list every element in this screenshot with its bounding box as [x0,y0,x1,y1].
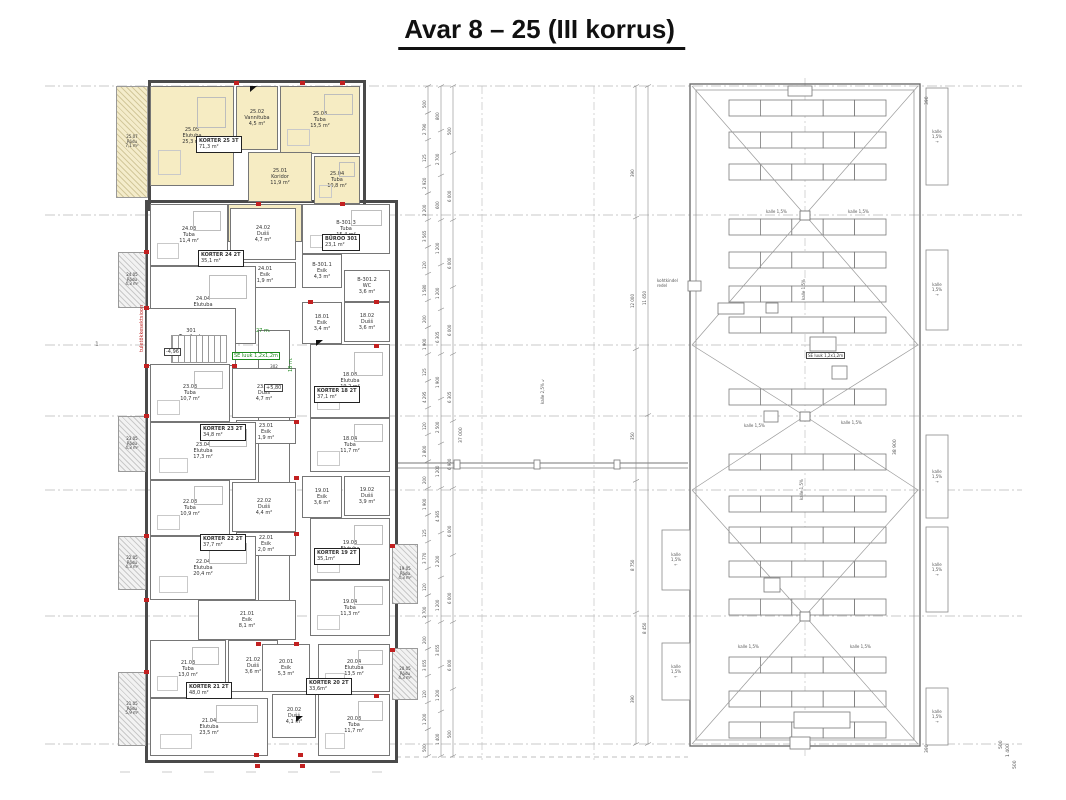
room-label: 21.01Esik8,1 m² [239,611,255,629]
furniture-icon [209,275,246,300]
room-area: 3,6 m² [314,500,330,506]
room: B-301.1Esik4,3 m² [302,254,342,288]
roof-panel [792,527,823,543]
roof-panel [729,496,760,512]
red-door-tag [144,364,149,368]
dimension-number: 1 900 [422,338,427,349]
red-door-tag [374,300,379,304]
roof-panel [760,252,791,268]
roof-panel [729,389,760,405]
room: 19.04Tuba11,3 m² [310,580,390,636]
roof-vent [832,366,847,379]
roof-panel [792,100,823,116]
room: B-301.2WC3,6 m² [344,270,390,302]
apartment-area: 37,7 m² [203,542,223,548]
furniture-icon [319,185,332,198]
dimension-number: 6 000 [447,592,452,603]
roof-panel [792,252,823,268]
red-door-tag [234,81,239,85]
roof-panel [729,100,760,116]
roof-panel [729,599,760,615]
roof-panel [855,527,886,543]
apartment-area: 71,3 m² [199,144,219,150]
dimension-number: 6 000 [447,190,452,201]
note: 27 m. [256,328,270,334]
room-label: 21.05Rõdu5,9 m² [125,702,138,716]
balcony: 24.05Rõdu4,3 m² [118,252,146,308]
dimension-number: 2 790 [422,124,427,135]
roof-panel [823,132,854,148]
red-door-tag [340,81,345,85]
red-door-tag [300,764,305,768]
room-area: 23,5 m² [199,730,219,736]
slope-label: kalle 1,5% [848,209,869,214]
roof-vent [764,578,780,592]
note: SE luuk 1,2x1,2m [232,352,280,360]
roof-panel [729,252,760,268]
dimension-number: 2 800 [422,445,427,456]
walkway-pier [534,460,540,469]
red-door-tag [256,642,261,646]
axis-label: 1 [95,341,99,348]
section-mark-icon [296,716,303,722]
roof-drain [800,211,810,220]
roof-panel [823,164,854,180]
room-area: 15,5 m² [310,123,330,129]
furniture-icon [317,615,339,630]
roof-panel [760,496,791,512]
room-area: 3,9 m² [359,499,375,505]
dimension-number: 200 [422,637,427,645]
apartment-area: 34,8 m² [203,432,223,438]
apartment-area: 23,1 m² [325,242,345,248]
dimension-number: 6 000 [447,257,452,268]
note: 18 m. [288,358,294,372]
room-area: 8,1 m² [239,623,255,629]
slope-label: kalle 1,5% [801,279,806,300]
slope-label: kalle1,5%→ [924,709,950,725]
roof-panel [823,389,854,405]
roof-panel [792,286,823,302]
dimension-number: 120 [422,262,427,270]
dimension-number: 2 200 [422,204,427,215]
apartment-area: 48,0 m² [189,690,209,696]
room-area: 11,4 m² [179,238,199,244]
furniture-icon [158,150,181,176]
room: 301Trepikoda17,3 m² [146,308,236,366]
red-door-tag [144,250,149,254]
roof-panel [823,691,854,707]
furniture-icon [287,129,309,147]
slope-label: kalle1,5%→ [924,469,950,485]
roof-vent [810,337,836,351]
roof-panel [729,722,760,738]
balcony: 19.05Rõdu4,3 m² [392,544,418,604]
roof-panel [823,454,854,470]
room-area: 4,3 m² [312,274,332,280]
dimension-number: 125 [422,530,427,538]
dimension-number: 500 [447,127,452,135]
furniture-icon [325,733,345,749]
red-door-tag [390,648,395,652]
roof-panel [760,599,791,615]
room: 25.03Tuba15,5 m² [280,86,360,154]
furniture-icon [351,210,382,226]
roof-vent [764,411,778,422]
roof-panel [855,219,886,235]
dimension-number: 6 000 [447,659,452,670]
dimension-number: 1 200 [435,243,440,254]
roof-panel [760,527,791,543]
dimension-number: 3 770 [422,553,427,564]
furniture-icon [358,650,384,666]
roof-vent [766,303,778,313]
room: 25.01Koridor11,9 m² [248,152,312,202]
room-label: 22.02Dušš4,4 m² [256,498,272,516]
room-area: 3,4 m² [314,326,330,332]
dimension-number: 120 [422,422,427,430]
roof-panel [855,164,886,180]
furniture-icon [216,705,257,724]
roof-panel [792,691,823,707]
furniture-icon [159,458,188,473]
room-area: 4,3 m² [398,576,411,581]
roof-vent [788,86,812,96]
room-label: 19.02Dušš3,9 m² [359,487,375,505]
furniture-icon [193,211,221,231]
roof-panel [729,454,760,470]
roof-panel [760,561,791,577]
dimension-number: 3 055 [435,645,440,656]
room: 22.02Dušš4,4 m² [232,482,296,532]
furniture-icon [197,97,227,128]
room: 20.02Dušš4,1 m² [272,694,316,738]
dimension-number: 11 650 [642,291,647,305]
roof-panel [855,722,886,738]
roof-vent [718,303,744,314]
room-area: 4,3 m² [125,446,138,451]
room-area: 4,4 m² [256,510,272,516]
room: 18.04Tuba11,7 m² [310,418,390,472]
roof-panel [729,561,760,577]
roof-vent [688,281,701,291]
room-area: 7,1 m² [125,144,138,149]
room-area: 11,7 m² [344,728,364,734]
slope-label: kalle1,5%→ [924,282,950,298]
roof-panel [792,496,823,512]
red-door-tag [294,642,299,646]
balcony: 25.07Rõdu7,1 m² [116,86,148,198]
red-door-tag [232,364,237,368]
roof-panel [823,286,854,302]
slope-label: kalle1,5%→ [924,562,950,578]
roof-panel [823,527,854,543]
room-label: 21.02Dušš3,6 m² [245,657,261,675]
balcony: 23.05Rõdu4,3 m² [118,416,146,472]
roof-panel [792,389,823,405]
room: 19.01Esik3,6 m² [302,476,342,518]
furniture-icon [339,162,356,178]
room-area: 5,3 m² [278,671,294,677]
apartment-label: BÜROO 30123,1 m² [322,234,360,251]
apartment-area: 33,6m² [309,686,327,692]
apartment-area: 37,1 m² [317,394,337,400]
roof-panel [855,252,886,268]
room-area: 1,9 m² [258,435,274,441]
room-area: 13,5 m² [344,671,364,677]
furniture-icon [157,243,179,259]
red-door-tag [144,598,149,602]
room: 20.01Esik5,3 m² [262,644,310,692]
roof-panel [823,100,854,116]
room-label: 18.01Esik3,4 m² [314,314,330,332]
red-door-tag [298,753,303,757]
balcony: 21.05Rõdu5,9 m² [118,672,146,746]
room-label: 24.02Dušš4,7 m² [255,225,271,243]
room-area: 4,5 m² [244,121,269,127]
slope-label: kalle1,5%← [660,664,692,680]
room-area: 4,3 m² [125,565,138,570]
dimension-number: 8 750 [630,560,635,571]
note: -4,96 [164,348,181,356]
dimension-number: 1 200 [435,287,440,298]
walkway-pier [614,460,620,469]
room-label: 25.02Vannituba4,5 m² [244,109,269,127]
room-label: 19.05Rõdu4,3 m² [398,567,411,581]
room: 21.04Elutuba23,5 m² [150,698,268,756]
roof-panel [760,132,791,148]
dimension-number: 500 [422,744,427,752]
note: tuletõkkesektsioon [139,305,145,352]
room: 19.02Dušš3,9 m² [344,476,390,516]
section-mark-icon [316,340,323,346]
apartment-label: KORTER 21 2T48,0 m² [186,682,232,699]
room-area: 4,3 m² [398,676,411,681]
roof-panel [855,100,886,116]
roof-panel [792,132,823,148]
room-label: 20.05Rõdu4,3 m² [398,667,411,681]
dimension-number: 1 400 [435,734,440,745]
slope-label: kalle 1,5% [738,644,759,649]
furniture-icon [354,586,383,604]
roof-panel [792,219,823,235]
dimension-number: 3 055 [422,660,427,671]
room: 18.03Elutuba19,2 m² [310,344,390,418]
room: 25.02Vannituba4,5 m² [236,86,278,150]
room-area: 4,7 m² [255,237,271,243]
red-door-tag [256,202,261,206]
dimension-number: 38 900 [893,439,898,455]
roof-panel [729,317,760,333]
note: +5,80 [264,384,283,392]
room-area: 17,3 m² [193,454,213,460]
room: 20.03Tuba11,7 m² [318,694,390,756]
dimension-number: 37 000 [459,427,464,443]
section-mark-icon [250,86,257,92]
roof-panel [823,599,854,615]
dimension-number: 120 [422,583,427,591]
red-door-tag [144,306,149,310]
roof-panel [729,164,760,180]
apartment-label: KORTER 20 2T33,6m² [306,678,352,695]
roof-panel [792,164,823,180]
roof-vent [790,737,810,749]
dimension-number: 390 [925,96,930,105]
dimension-number: 390 [925,744,930,753]
room-area: 3,6 m² [357,289,377,295]
room-area: 10,7 m² [180,396,200,402]
slope-label: kalle 2,5% ↙ [540,379,545,404]
furniture-icon [157,515,179,530]
slope-label: kalle 1,5% [841,420,862,425]
apartment-label: KORTER 18 2T37,1 m² [314,386,360,403]
dimension-number: 6 305 [447,391,452,402]
apartment-area: 35,1m² [317,556,335,562]
dimension-number: 2 700 [422,606,427,617]
red-door-tag [294,532,299,536]
furniture-icon [157,400,179,415]
roof-panel [760,317,791,333]
dimension-number: 120 [422,690,427,698]
roof-panel [823,496,854,512]
dimension-number: 2 920 [422,177,427,188]
balcony: 22.05Rõdu4,3 m² [118,536,146,590]
dimension-number: 4 365 [435,511,440,522]
dimension-number: 200 [422,315,427,323]
room-area: 4,3 m² [125,282,138,287]
room-label: 18.02Dušš3,6 m² [359,313,375,331]
dimension-number: 3 565 [422,231,427,242]
dimension-number: 500 [1013,760,1018,769]
dimension-number: 6 000 [447,525,452,536]
furniture-icon [194,486,223,504]
apartment-label: KORTER 19 2T35,1m² [314,548,360,565]
red-door-tag [294,420,299,424]
roof-panel [760,100,791,116]
roof-panel [792,561,823,577]
dimension-number: 390 [630,169,635,177]
apartment-label: KORTER 22 2T37,7 m² [200,534,246,551]
roof-panel [729,527,760,543]
room-label: 23.01Esik1,9 m² [258,423,274,441]
red-door-tag [374,344,379,348]
room-area: 3,6 m² [245,669,261,675]
dimension-number: 350 [630,432,635,440]
room: 18.01Esik3,4 m² [302,302,342,344]
roof-panel [729,657,760,673]
roof-panel [855,691,886,707]
roof-panel [729,691,760,707]
red-door-tag [254,753,259,757]
room-area: 11,3 m² [340,611,360,617]
roof-panel [855,454,886,470]
slope-label: kalle1,5%→ [924,129,950,145]
room-label: 22.01Esik2,0 m² [258,535,274,553]
dimension-number: 1 200 [435,689,440,700]
furniture-icon [358,701,384,721]
dimension-number: 2 700 [435,153,440,164]
roof-drain [800,412,810,421]
room-area: 13,0 m² [178,672,198,678]
roof-panel [792,657,823,673]
furniture-icon [159,576,188,593]
roof-panel [855,286,886,302]
slope-label: kalle 1,5% [744,423,765,428]
roof-panel [760,657,791,673]
room-area: 10,9 m² [180,511,200,517]
furniture-icon [354,424,383,442]
dimension-number: 6 900 [447,458,452,469]
roof-panel [760,286,791,302]
room: 22.03Tuba10,9 m² [150,480,230,536]
furniture-icon [354,352,383,376]
dimension-number: 2 200 [435,555,440,566]
room-label: 19.01Esik3,6 m² [314,488,330,506]
room-area: 4,7 m² [256,396,272,402]
walkway-pier [454,460,460,469]
roof-panel [760,164,791,180]
room-area: 3,6 m² [359,325,375,331]
dimension-number: 800 [435,112,440,120]
dimension-number: 8 450 [642,622,647,633]
room-label: 23.05Rõdu4,3 m² [125,437,138,451]
dimension-number: 390 [630,695,635,703]
roof-panel [729,286,760,302]
room-area: 5,9 m² [125,711,138,716]
dimension-number: 500 [447,730,452,738]
roof-panel [823,219,854,235]
dimension-number: 200 [422,476,427,484]
roof-panel [855,496,886,512]
dimension-number: 4 295 [422,392,427,403]
furniture-icon [354,525,383,545]
furniture-icon [160,734,192,749]
roof-valley-line [805,416,918,490]
red-door-tag [255,764,260,768]
dimension-number: 600 [435,202,440,210]
dimension-number: 6 000 [447,324,452,335]
dimension-number: 2 500 [435,421,440,432]
room-area: 20,4 m² [193,571,213,577]
slope-label: kalle1,5%← [660,552,692,568]
room-label: 24.05Rõdu4,3 m² [125,273,138,287]
roof-panel [855,657,886,673]
apartment-label: KORTER 23 2T34,8 m² [200,424,246,441]
roof-panel [729,132,760,148]
roof-hatch-label: SE luuk 1,2x1,2m [806,352,845,359]
roof-vent [794,712,850,728]
roof-panel [823,317,854,333]
room-label: B-301.2WC3,6 m² [357,277,377,295]
roof-panel [792,317,823,333]
roof-panel [792,454,823,470]
red-door-tag [374,694,379,698]
dimension-number: 1 900 [435,377,440,388]
room: 25.04Tuba10,8 m² [314,156,360,204]
dimension-number: 125 [422,154,427,162]
dimension-number: 1 200 [435,466,440,477]
roof-panel [855,317,886,333]
red-door-tag [294,476,299,480]
roof-drain [800,612,810,621]
roof-panel [760,691,791,707]
furniture-icon [317,451,339,465]
roof-panel [855,389,886,405]
red-door-tag [144,670,149,674]
red-door-tag [144,534,149,538]
room: 23.02Dušš4,7 m² [232,368,296,418]
apartment-label: KORTER 25 3T71,3 m² [196,136,242,153]
